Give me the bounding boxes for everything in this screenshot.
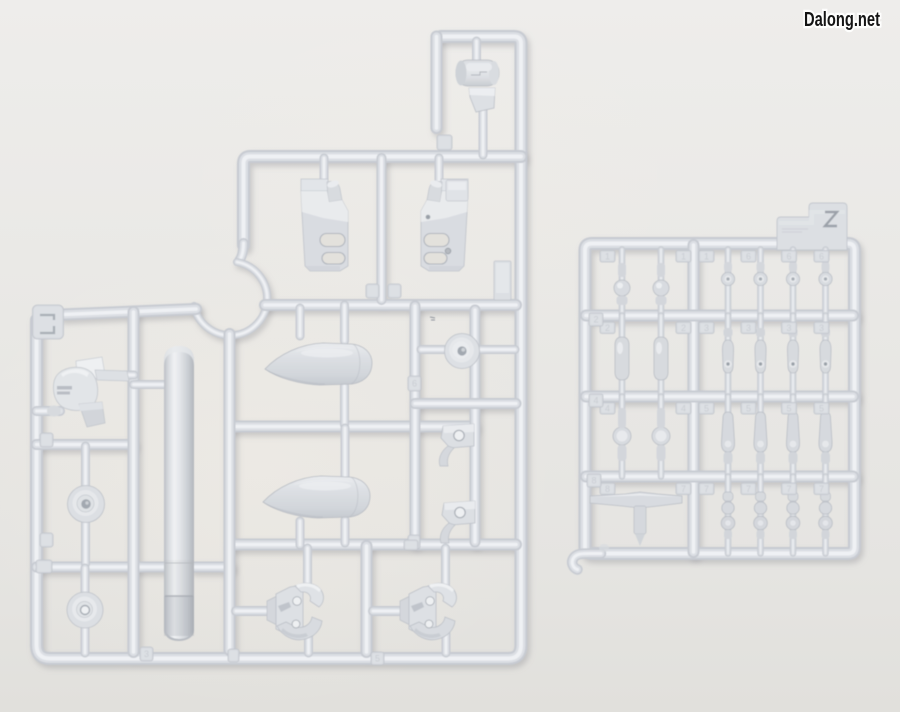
svg-text:5: 5 xyxy=(819,403,824,413)
svg-text:6: 6 xyxy=(412,379,417,389)
svg-text:3: 3 xyxy=(819,323,824,333)
svg-text:1: 1 xyxy=(605,251,610,261)
svg-text:5: 5 xyxy=(704,403,709,413)
svg-text:4: 4 xyxy=(605,403,610,413)
svg-text:4: 4 xyxy=(593,396,598,406)
svg-text:8: 8 xyxy=(605,484,610,494)
svg-text:7: 7 xyxy=(746,484,751,494)
svg-text:5: 5 xyxy=(375,654,380,664)
svg-text:8: 8 xyxy=(591,476,596,486)
svg-text:7: 7 xyxy=(819,484,824,494)
svg-text:7: 7 xyxy=(681,484,686,494)
svg-text:6: 6 xyxy=(819,251,824,261)
svg-text:2: 2 xyxy=(605,323,610,333)
svg-text:1: 1 xyxy=(681,251,686,261)
svg-text:6: 6 xyxy=(786,251,791,261)
svg-text:7: 7 xyxy=(786,484,791,494)
svg-text:5: 5 xyxy=(746,403,751,413)
svg-text:5: 5 xyxy=(786,403,791,413)
svg-text:Dalong.net: Dalong.net xyxy=(804,9,880,31)
svg-text:3: 3 xyxy=(786,323,791,333)
svg-text:3: 3 xyxy=(144,649,149,659)
svg-text:6: 6 xyxy=(746,251,751,261)
svg-text:3: 3 xyxy=(746,323,751,333)
svg-text:2: 2 xyxy=(593,315,598,325)
svg-text:1: 1 xyxy=(704,251,709,261)
svg-text:4: 4 xyxy=(681,403,686,413)
svg-text:2: 2 xyxy=(681,323,686,333)
svg-text:7: 7 xyxy=(704,484,709,494)
svg-text:3: 3 xyxy=(704,323,709,333)
